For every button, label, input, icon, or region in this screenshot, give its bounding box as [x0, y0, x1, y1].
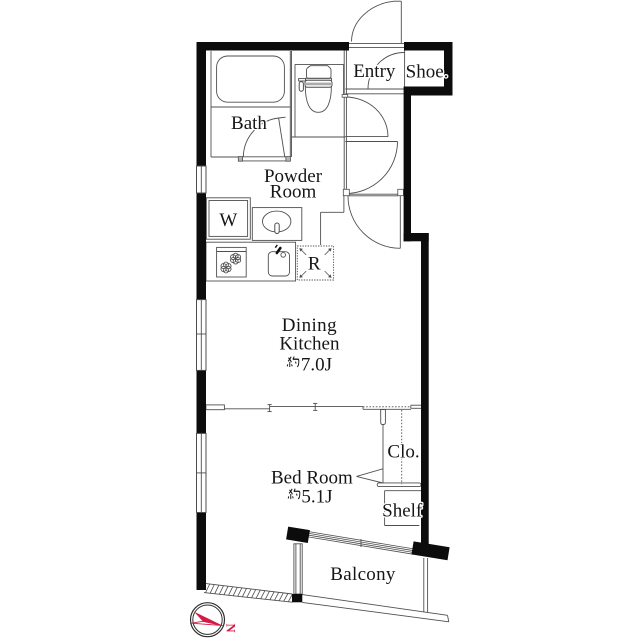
- svg-text:Room: Room: [270, 182, 317, 203]
- svg-text:Kitchen: Kitchen: [279, 334, 340, 355]
- svg-text:7.0J: 7.0J: [301, 354, 332, 375]
- svg-text:Entry: Entry: [353, 61, 396, 82]
- svg-text:Shelf: Shelf: [382, 501, 423, 522]
- svg-text:R: R: [308, 254, 321, 275]
- svg-text:N: N: [223, 623, 237, 632]
- svg-text:Shoe.: Shoe.: [406, 62, 449, 83]
- svg-text:Clo.: Clo.: [387, 442, 419, 463]
- svg-text:Bath: Bath: [231, 113, 267, 134]
- svg-text:5.1J: 5.1J: [301, 486, 332, 507]
- svg-text:Balcony: Balcony: [330, 564, 396, 585]
- svg-text:W: W: [219, 210, 237, 231]
